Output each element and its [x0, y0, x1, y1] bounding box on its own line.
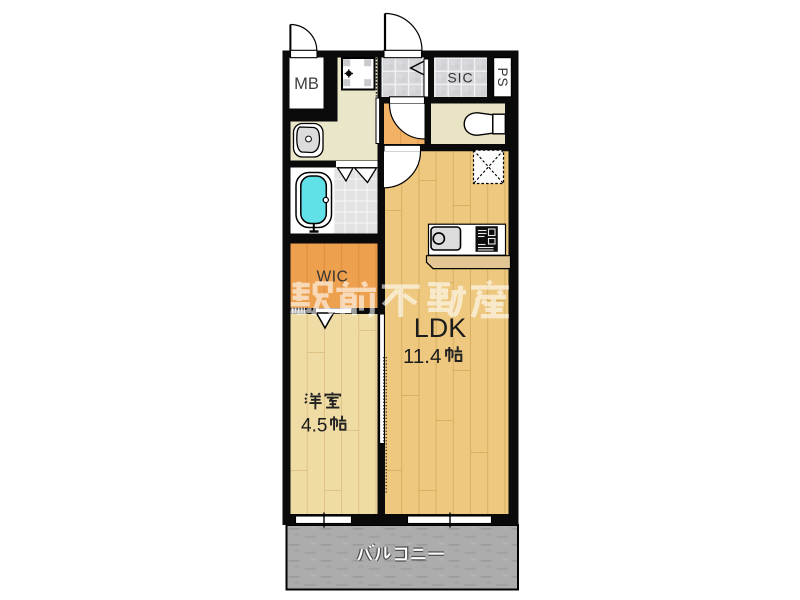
svg-text:SIC: SIC: [447, 70, 473, 86]
svg-text:PS: PS: [495, 67, 510, 87]
svg-text:MB: MB: [294, 75, 319, 93]
svg-text:11.4: 11.4: [403, 345, 441, 368]
svg-text:4.5: 4.5: [301, 416, 327, 437]
svg-text:LDK: LDK: [414, 313, 467, 343]
